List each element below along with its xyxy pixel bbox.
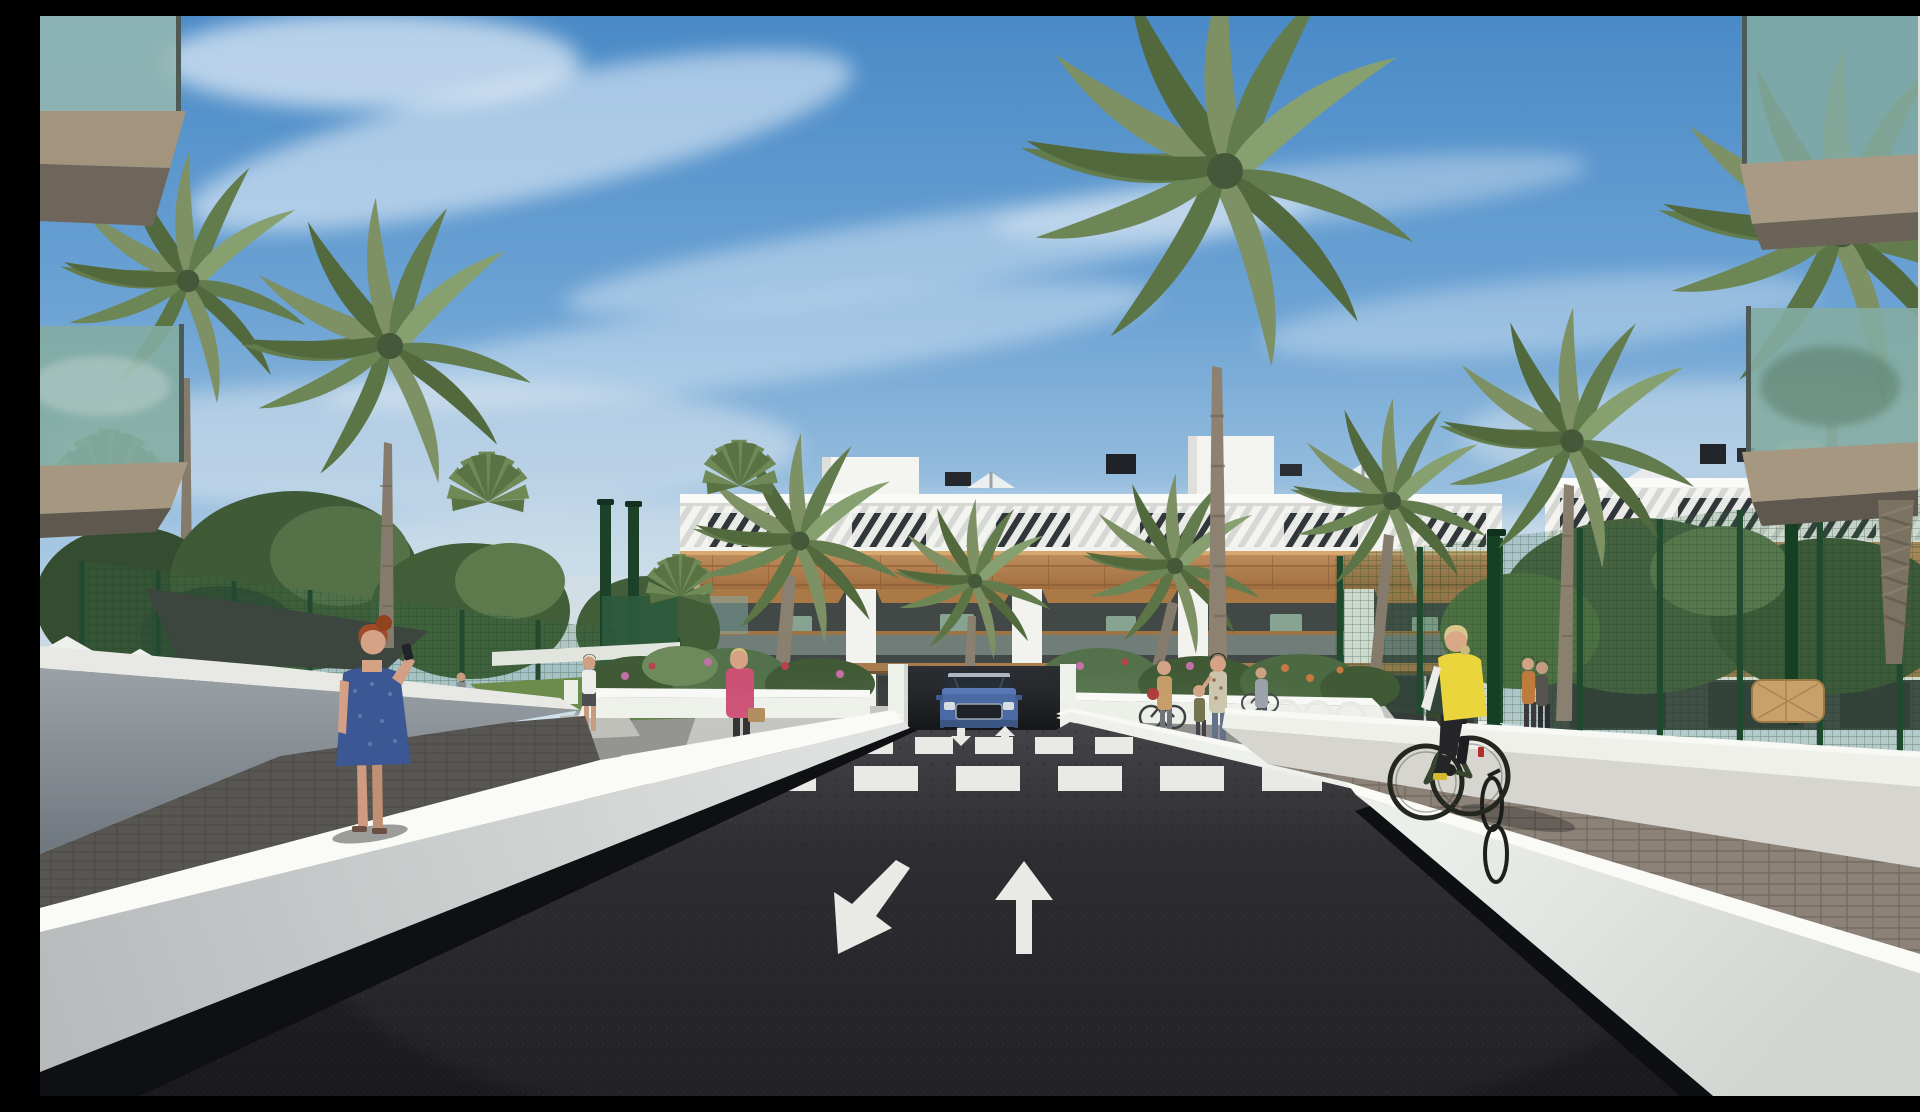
fence-tall-post <box>1487 529 1506 536</box>
bike-rear-light <box>1478 747 1484 757</box>
roof-vent <box>1106 454 1136 474</box>
cyclist-shoe <box>1433 773 1447 780</box>
roof-vent <box>945 472 971 486</box>
render-viewport <box>40 16 1920 1096</box>
gate-pillar <box>564 680 578 704</box>
cyclist-vest <box>1438 653 1487 721</box>
glass-railing <box>1746 16 1918 166</box>
roof-vent <box>1280 464 1302 476</box>
wicker-bench <box>1752 680 1824 724</box>
hair-bun <box>376 615 392 631</box>
